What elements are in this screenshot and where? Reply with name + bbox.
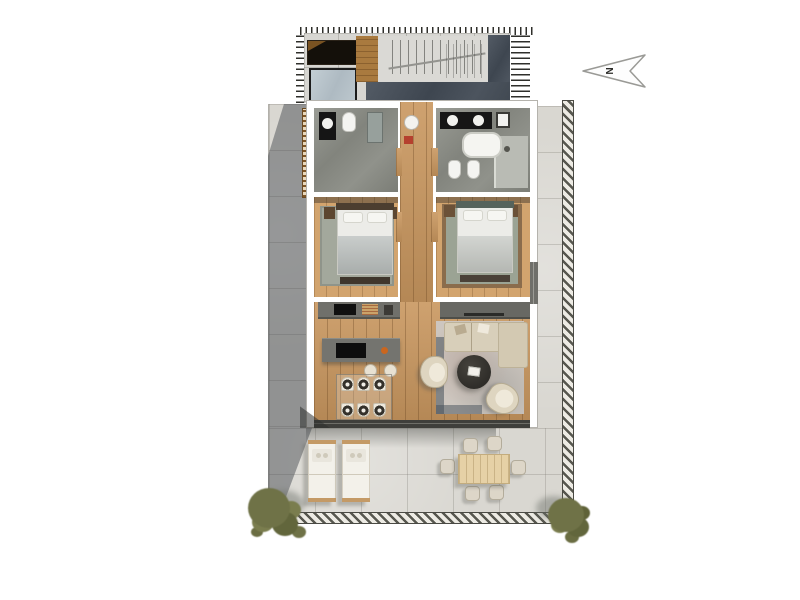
- pillow: [343, 212, 363, 223]
- plant-right: [548, 498, 584, 532]
- coffee-table: [457, 355, 491, 389]
- north-arrow: N: [580, 52, 650, 92]
- door-bedroom-right: [431, 212, 438, 242]
- skylight: [309, 68, 357, 103]
- lounger-frame-top: [308, 440, 336, 444]
- door-bathroom-right: [431, 148, 438, 176]
- lounger-fold-line: [309, 474, 335, 475]
- north-arrow-label: N: [603, 67, 614, 74]
- glass-wall-south: [314, 420, 530, 428]
- counter-appliance: [384, 305, 393, 315]
- lounger-frame-bottom: [342, 498, 370, 502]
- lounger-pillow: [312, 449, 332, 462]
- entry-round-table: [404, 115, 419, 130]
- cooktop: [336, 343, 366, 358]
- roof-planter: [307, 40, 357, 65]
- outdoor-chair: [440, 459, 455, 474]
- nightstand: [444, 205, 455, 217]
- lounger-frame-top: [342, 440, 370, 444]
- headboard: [456, 201, 514, 208]
- place-setting: [358, 405, 369, 416]
- plant-left: [248, 488, 290, 528]
- double-vanity: [440, 112, 492, 129]
- toilet-right: [448, 160, 461, 179]
- roof-hatched-edge-left: [296, 33, 304, 103]
- glass-door-east: [530, 262, 538, 304]
- blanket: [458, 236, 512, 272]
- toilet-left: [342, 112, 356, 132]
- pillow-button: [357, 453, 362, 458]
- bed-right: [457, 203, 513, 273]
- lounger-frame-bottom: [308, 498, 336, 502]
- sink-basin-1: [447, 115, 458, 126]
- stair-wood-landing: [356, 36, 378, 82]
- foot-bench: [460, 275, 510, 282]
- lounger-pillow: [346, 449, 366, 462]
- kitchen-island: [322, 338, 400, 362]
- bidet: [467, 160, 480, 179]
- kitchen-sink: [334, 304, 356, 315]
- pillow-button: [350, 453, 355, 458]
- door-bathroom-left: [396, 148, 402, 176]
- lounger-fold-line: [343, 474, 369, 475]
- floor-plan-canvas: N: [0, 0, 800, 600]
- terrace-railing-right: [562, 100, 574, 512]
- outdoor-dining-table: [458, 454, 510, 484]
- terrace-railing-bottom: [294, 512, 574, 524]
- rug-dark-edge-bottom: [436, 405, 482, 414]
- pillow: [367, 212, 387, 223]
- outdoor-chair: [487, 436, 502, 451]
- place-setting: [358, 379, 369, 390]
- entry-red-mat: [404, 136, 413, 144]
- bathroom-cabinet: [367, 112, 383, 143]
- kitchen-counter: [318, 302, 400, 319]
- place-setting: [342, 405, 353, 416]
- armchair-seat: [429, 363, 445, 382]
- armchair: [420, 356, 448, 388]
- orange-pot: [381, 347, 388, 354]
- outdoor-chair: [511, 460, 526, 475]
- sink-basin-2: [473, 115, 484, 126]
- coffee-table-book: [467, 366, 480, 377]
- pillow-button: [323, 453, 328, 458]
- outdoor-chair: [465, 486, 480, 501]
- bed-left: [337, 205, 393, 275]
- shower-drain: [504, 146, 510, 152]
- nightstand: [324, 207, 335, 219]
- place-setting: [374, 379, 385, 390]
- vanity-left: [319, 112, 336, 140]
- hallway-floor: [400, 102, 433, 304]
- pillow-button: [316, 453, 321, 458]
- outdoor-chair: [489, 485, 504, 500]
- foot-bench: [340, 277, 390, 284]
- cutting-board: [362, 304, 378, 315]
- place-setting: [342, 379, 353, 390]
- pillow: [463, 210, 483, 221]
- tv-console: [440, 302, 530, 319]
- sink-basin: [322, 118, 333, 129]
- blanket: [338, 236, 392, 274]
- roof-hatched-edge-right: [511, 33, 530, 103]
- armchair-seat: [492, 386, 517, 411]
- planter-wood-corner: [308, 41, 326, 51]
- sun-lounger: [308, 440, 336, 502]
- sun-lounger: [342, 440, 370, 502]
- staircase: [378, 36, 488, 82]
- sofa-chaise: [498, 322, 528, 368]
- place-setting: [374, 405, 385, 416]
- building-shadow-left: [268, 104, 306, 428]
- outdoor-chair: [463, 438, 478, 453]
- headboard: [336, 203, 394, 210]
- corner-sink: [496, 112, 510, 128]
- sofa-pillow: [477, 323, 489, 334]
- bathtub: [462, 132, 502, 158]
- tv-soundbar: [464, 313, 504, 316]
- stair-treads: [446, 44, 488, 78]
- pillow: [487, 210, 507, 221]
